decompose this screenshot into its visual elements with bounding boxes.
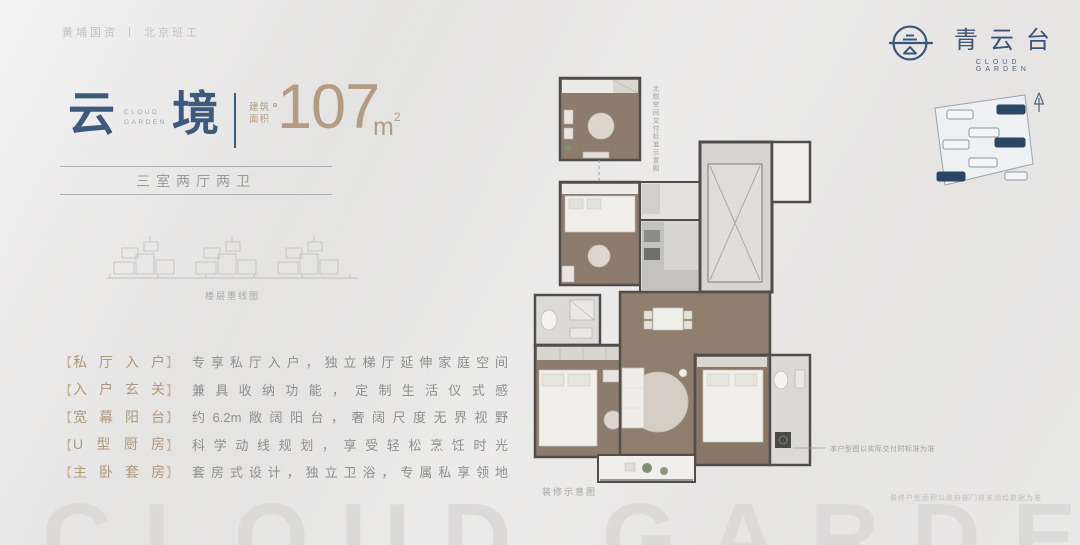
feature-label: 主卧套房 — [73, 462, 165, 482]
bracket-close: 】 — [166, 352, 179, 371]
floorplan-vertical-note: 北侧空间交付标准示意图 — [649, 85, 659, 173]
poster: CLOUD GARDEN 黄埔国资 丨 北京班工 青云台 CLOUD GARDE… — [0, 0, 1080, 545]
feature-label: 入户玄关 — [73, 379, 165, 399]
bracket-open: 【 — [59, 435, 72, 454]
layout-type: 三室两厅两卫 — [60, 171, 332, 191]
bracket-close: 】 — [166, 435, 179, 454]
master-bedroom — [695, 355, 770, 465]
brand-name-cn: 青云台 — [954, 20, 1080, 55]
bracket-close: 】 — [166, 407, 179, 426]
area-unit-exponent: 2 — [394, 110, 401, 124]
feature-row: 【宽幕阳台】 约6.2m敞阔阳台，奢阔尺度无界视野 — [58, 403, 508, 431]
layout-rule-bottom — [60, 194, 332, 195]
north-arrow-icon — [1035, 93, 1044, 112]
site-plan — [927, 88, 1049, 198]
bedroom-upper-left — [560, 182, 640, 285]
area-value: 107 — [277, 76, 379, 139]
feature-list: 【私厅入户】 专享私厅入户，独立梯厅延伸家庭空间 【入户玄关】 兼具收纳功能，定… — [58, 348, 508, 486]
feature-desc: 套房式设计，独立卫浴，专属私享领地 — [192, 462, 508, 481]
bracket-close: 】 — [166, 380, 179, 399]
product-name-en: CLOUD GARDEN — [124, 108, 167, 128]
bracket-open: 【 — [59, 462, 72, 481]
feature-row: 【U型厨房】 科学动线规划，享受轻松烹饪时光 — [58, 431, 508, 459]
stair-core — [700, 142, 810, 292]
product-name-en-line2: GARDEN — [124, 118, 167, 128]
bathroom-left — [535, 295, 600, 345]
floorplan-caption: 装修示意图 — [542, 485, 597, 498]
feature-label: U型厨房 — [73, 434, 165, 454]
bracket-open: 【 — [59, 407, 72, 426]
feature-desc: 科学动线规划，享受轻松烹饪时光 — [192, 435, 508, 454]
brand-logo: 青云台 CLOUD GARDEN — [888, 20, 1080, 73]
cloud-circle-logo-icon — [888, 20, 942, 66]
area-label-line1: 建筑 — [249, 102, 270, 114]
balcony — [598, 455, 695, 482]
floorplan-side-note: 本户型图以实际交付时标准为准 — [830, 444, 935, 454]
feature-row: 【入户玄关】 兼具收纳功能，定制生活仪式感 — [58, 376, 508, 404]
area-unit-letter: m — [373, 113, 394, 141]
kitchen — [640, 182, 700, 292]
feature-desc: 约6.2m敞阔阳台，奢阔尺度无界视野 — [192, 407, 508, 426]
floorplan-disclaimer: 最终户型面积以政府部门核准测绘数据为准 — [890, 493, 1042, 503]
area-unit: m2 — [373, 110, 401, 142]
building-elevation-drawing — [100, 228, 365, 286]
developer-credit: 黄埔国资 丨 北京班工 — [62, 24, 200, 40]
feature-row: 【私厅入户】 专享私厅入户，独立梯厅延伸家庭空间 — [58, 348, 508, 376]
elevation-caption: 楼层墨线图 — [100, 289, 365, 302]
bracket-open: 【 — [59, 380, 72, 399]
bathroom-right — [770, 355, 825, 465]
bracket-close: 】 — [166, 462, 179, 481]
north-room — [560, 78, 640, 160]
hero-divider — [234, 93, 236, 148]
floor-plan-drawing — [525, 70, 825, 490]
feature-desc: 专享私厅入户，独立梯厅延伸家庭空间 — [192, 352, 508, 371]
feature-label: 宽幕阳台 — [73, 407, 165, 427]
feature-desc: 兼具收纳功能，定制生活仪式感 — [192, 380, 508, 399]
bedroom-bottom-left — [535, 345, 630, 457]
bracket-open: 【 — [59, 352, 72, 371]
feature-row: 【主卧套房】 套房式设计，独立卫浴，专属私享领地 — [58, 458, 508, 486]
brand-name-en: CLOUD GARDEN — [954, 59, 1080, 73]
area-label: 建筑 面积 — [249, 102, 270, 126]
product-name-en-line1: CLOUD — [124, 108, 167, 118]
layout-rule-top — [60, 166, 332, 167]
product-name-char-2: 境 — [172, 90, 219, 137]
product-name-char-1: 云 — [68, 90, 115, 137]
area-label-line2: 面积 — [249, 114, 270, 126]
feature-label: 私厅入户 — [73, 352, 165, 372]
